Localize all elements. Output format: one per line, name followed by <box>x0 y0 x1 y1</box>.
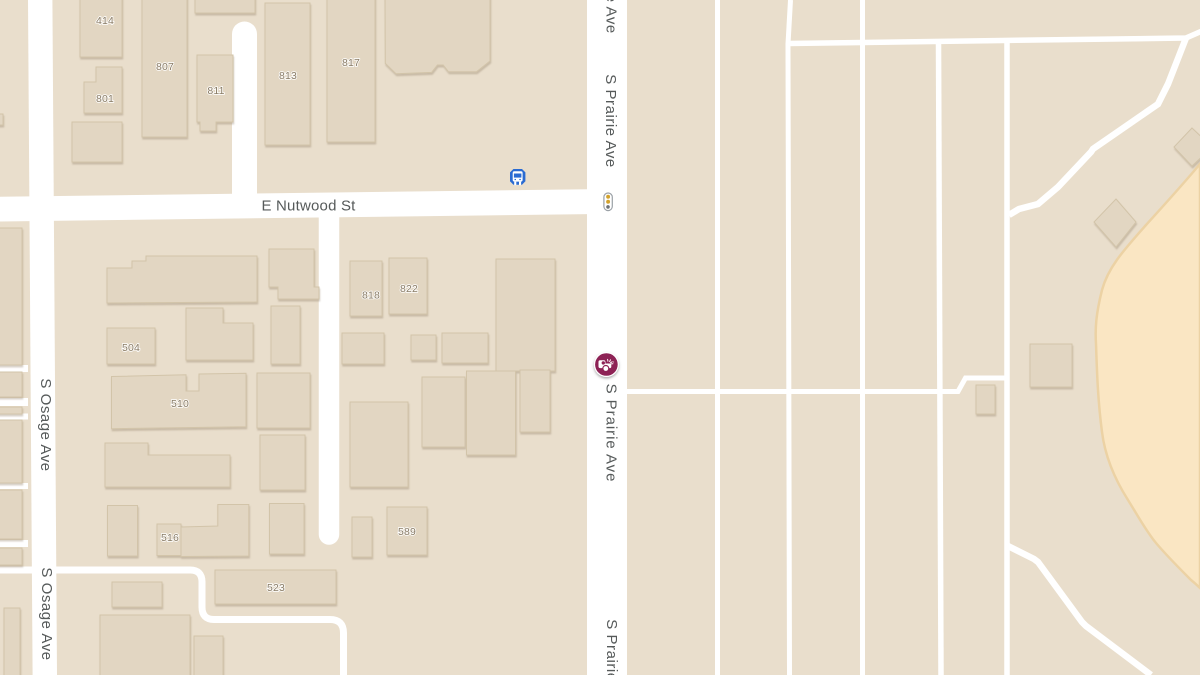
svg-text:S Prairie Ave: S Prairie Ave <box>602 74 619 168</box>
svg-text:S Prairie Ave: S Prairie Ave <box>603 0 620 34</box>
svg-text:414: 414 <box>96 15 114 27</box>
svg-text:S Prairie Ave: S Prairie Ave <box>603 619 620 675</box>
svg-text:811: 811 <box>207 85 224 97</box>
svg-text:S Osage Ave: S Osage Ave <box>38 567 55 660</box>
svg-text:510: 510 <box>171 398 189 410</box>
svg-text:817: 817 <box>342 57 360 69</box>
svg-text:504: 504 <box>122 342 140 354</box>
svg-text:516: 516 <box>161 532 179 544</box>
svg-text:813: 813 <box>279 70 297 82</box>
svg-text:589: 589 <box>398 526 416 538</box>
svg-text:818: 818 <box>362 290 380 302</box>
svg-text:807: 807 <box>156 61 174 73</box>
svg-text:801: 801 <box>96 93 114 105</box>
svg-text:S Prairie Ave: S Prairie Ave <box>603 384 620 483</box>
svg-text:E Nutwood St: E Nutwood St <box>261 198 356 215</box>
svg-text:523: 523 <box>267 582 285 594</box>
svg-text:822: 822 <box>400 283 418 295</box>
svg-text:S Osage Ave: S Osage Ave <box>37 378 54 471</box>
